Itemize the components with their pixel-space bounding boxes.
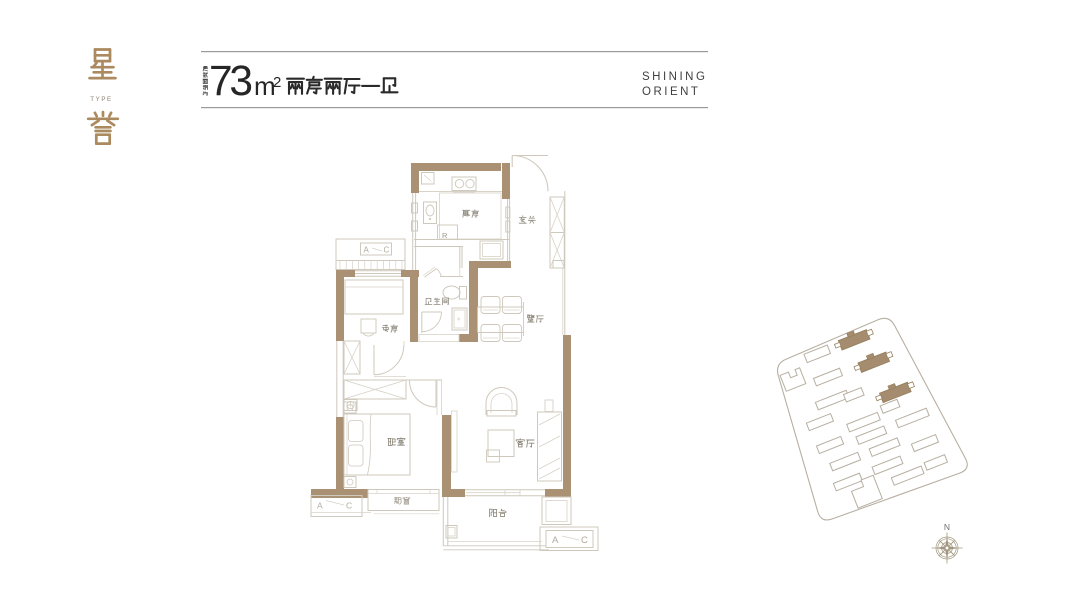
svg-text:A: A bbox=[364, 246, 370, 255]
svg-text:ORIENT: ORIENT bbox=[642, 86, 700, 98]
svg-text:C: C bbox=[384, 246, 390, 255]
svg-text:A: A bbox=[317, 501, 323, 511]
svg-text:C: C bbox=[346, 501, 352, 511]
svg-text:N: N bbox=[944, 522, 950, 532]
svg-text:73: 73 bbox=[209, 58, 251, 105]
svg-text:C: C bbox=[581, 535, 588, 546]
svg-text:SHINING: SHINING bbox=[642, 71, 707, 83]
svg-text:TYPE: TYPE bbox=[90, 96, 113, 103]
svg-text:R: R bbox=[442, 231, 448, 240]
svg-text:A: A bbox=[552, 535, 559, 546]
svg-text:2: 2 bbox=[273, 74, 281, 91]
